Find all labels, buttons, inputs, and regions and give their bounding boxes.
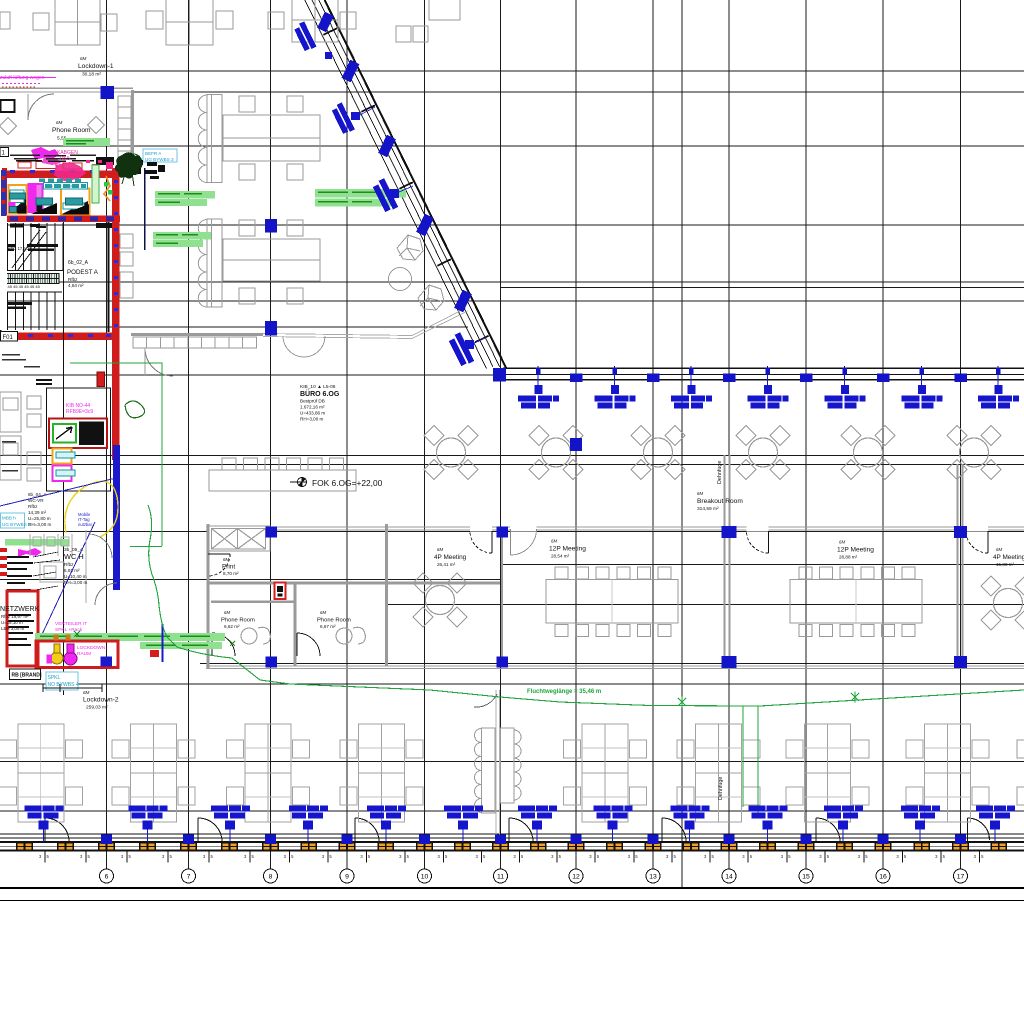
svg-text:4P Meeting: 4P Meeting xyxy=(993,554,1024,561)
svg-text:6M: 6M xyxy=(839,540,845,545)
svg-text:RB [BRAND]: RB [BRAND] xyxy=(12,673,42,679)
svg-text:Phone Room: Phone Room xyxy=(52,127,91,134)
svg-text:LOCKDOWN: LOCKDOWN xyxy=(77,645,106,651)
svg-text:Breakout Room: Breakout Room xyxy=(697,498,743,505)
svg-text:12P Meeting: 12P Meeting xyxy=(549,546,586,553)
svg-text:12: 12 xyxy=(572,874,580,881)
svg-text:13: 13 xyxy=(649,874,657,881)
svg-text:RH=3,00 m: RH=3,00 m xyxy=(28,522,52,527)
svg-text:6,62 m²: 6,62 m² xyxy=(224,624,240,629)
svg-text:314,59 m²: 314,59 m² xyxy=(697,506,719,512)
svg-text:6M: 6M xyxy=(996,547,1002,552)
svg-text:U=433,86 m: U=433,86 m xyxy=(300,411,325,416)
svg-text:Phone Room: Phone Room xyxy=(317,618,351,624)
svg-text:UG BYWBS 4: UG BYWBS 4 xyxy=(2,522,31,527)
svg-text:Bestprüf DB: Bestprüf DB xyxy=(300,399,325,404)
svg-text:17: 17 xyxy=(957,874,965,881)
svg-text:NETZWERK: NETZWERK xyxy=(0,606,40,613)
svg-text:6b_04_A: 6b_04_A xyxy=(28,492,47,497)
svg-text:28,54 m²: 28,54 m² xyxy=(551,554,570,559)
svg-text:Print: Print xyxy=(222,564,235,571)
svg-text:Dehnfuge: Dehnfuge xyxy=(717,461,723,484)
svg-text:UG BYWBS 3: UG BYWBS 3 xyxy=(145,157,174,162)
svg-text:15: 15 xyxy=(802,874,810,881)
svg-text:6M: 6M xyxy=(551,539,557,544)
svg-text:12P Meeting: 12P Meeting xyxy=(837,547,874,554)
svg-text:Rfbz: Rfbz xyxy=(28,504,38,509)
svg-text:RFB9E=3c9: RFB9E=3c9 xyxy=(66,409,93,415)
svg-text:Lockdown-1: Lockdown-1 xyxy=(78,63,114,70)
svg-text:F01: F01 xyxy=(3,335,14,341)
svg-text:RH=3,00 m: RH=3,00 m xyxy=(64,580,88,585)
svg-text:15,80 m²: 15,80 m² xyxy=(996,562,1015,567)
svg-text:4P Meeting: 4P Meeting xyxy=(434,554,467,561)
svg-text:14: 14 xyxy=(725,874,733,881)
svg-text:Lockdown-2: Lockdown-2 xyxy=(83,697,119,704)
svg-text:Fluchtweglänge = 35,46 m: Fluchtweglänge = 35,46 m xyxy=(527,689,601,695)
svg-text:U=18,10 m: U=18,10 m xyxy=(1,620,23,625)
svg-text:nutzbar: nutzbar xyxy=(78,522,93,527)
svg-text:259,03 m²: 259,03 m² xyxy=(86,705,108,711)
svg-text:6M: 6M xyxy=(80,56,87,61)
svg-text:FOK 6.OG=+22,00: FOK 6.OG=+22,00 xyxy=(312,478,383,488)
svg-text:6M: 6M xyxy=(697,491,703,496)
svg-text:26,41 m²: 26,41 m² xyxy=(437,562,456,567)
svg-text:Rfbz: Rfbz xyxy=(64,562,74,567)
svg-text:RAUM: RAUM xyxy=(77,651,91,657)
svg-text:28,88 m²: 28,88 m² xyxy=(839,555,858,560)
svg-text:11: 11 xyxy=(497,874,504,881)
svg-text:KIB_10 ▲ L5-06: KIB_10 ▲ L5-06 xyxy=(300,384,336,390)
svg-text:7: 7 xyxy=(187,874,191,881)
svg-text:6: 6 xyxy=(105,874,109,881)
svg-text:6M: 6M xyxy=(83,690,90,695)
svg-text:6M: 6M xyxy=(437,547,443,552)
svg-text:RH=3,00 m: RH=3,00 m xyxy=(300,417,324,422)
svg-text:6,91 m²: 6,91 m² xyxy=(64,568,80,573)
svg-text:16: 16 xyxy=(879,874,887,881)
svg-text:03.5: 03.5 xyxy=(60,156,70,162)
svg-text:6M: 6M xyxy=(56,120,63,125)
svg-text:MBB h: MBB h xyxy=(2,516,16,521)
svg-text:Rfbz 19,97 m²: Rfbz 19,97 m² xyxy=(1,614,29,619)
svg-text:U=10,40 m: U=10,40 m xyxy=(64,574,87,579)
svg-text:1.672,16 m²: 1.672,16 m² xyxy=(300,405,325,410)
svg-text:8,70 m²: 8,70 m² xyxy=(223,571,239,576)
svg-text:PODEST A: PODEST A xyxy=(67,269,99,276)
svg-text:SPKL: SPKL xyxy=(48,675,61,681)
svg-text:9: 9 xyxy=(345,874,349,881)
svg-text:BEFR A: BEFR A xyxy=(145,151,162,156)
svg-text:6M: 6M xyxy=(224,610,230,615)
svg-text:NO BYWBS 4: NO BYWBS 4 xyxy=(48,682,79,688)
svg-text:8: 8 xyxy=(269,874,273,881)
svg-text:30,18 m²: 30,18 m² xyxy=(82,72,101,78)
svg-text:VERTEILER IT: VERTEILER IT xyxy=(55,621,87,627)
svg-text:Dehnfuge: Dehnfuge xyxy=(718,777,724,800)
svg-text:6b_02_A: 6b_02_A xyxy=(68,260,89,266)
svg-text:LBH 3,00 m: LBH 3,00 m xyxy=(1,626,25,631)
svg-text:Rfbz: Rfbz xyxy=(68,277,78,282)
svg-text:4,84 m²: 4,84 m² xyxy=(68,283,84,288)
svg-text:45 45 45 45 45 45 45: 45 45 45 45 45 45 45 xyxy=(2,284,41,289)
svg-text:6M: 6M xyxy=(223,557,229,562)
svg-text:14,39 m²: 14,39 m² xyxy=(28,510,47,515)
svg-text:U=25,80 m: U=25,80 m xyxy=(28,516,51,521)
svg-text:6,67 m²: 6,67 m² xyxy=(320,624,336,629)
svg-text:10: 10 xyxy=(421,874,429,881)
svg-text:6M: 6M xyxy=(320,610,326,615)
svg-text:BÜRO 6.OG: BÜRO 6.OG xyxy=(300,389,340,398)
svg-text:Phone Room: Phone Room xyxy=(221,618,255,624)
svg-text:WC H: WC H xyxy=(64,552,84,561)
